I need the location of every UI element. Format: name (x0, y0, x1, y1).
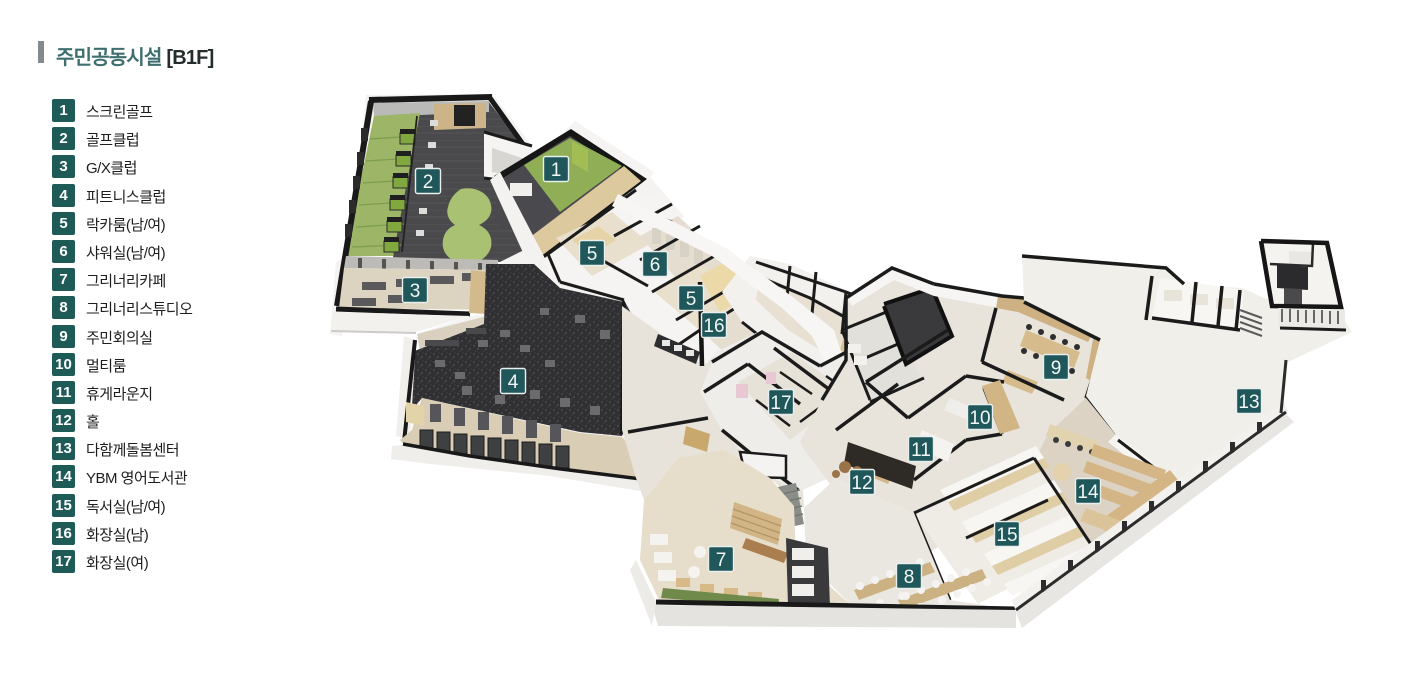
svg-text:14: 14 (1077, 482, 1099, 503)
svg-text:7: 7 (716, 550, 727, 571)
svg-text:5: 5 (587, 244, 598, 265)
svg-text:5: 5 (686, 289, 697, 310)
svg-text:8: 8 (904, 567, 915, 588)
svg-text:3: 3 (410, 281, 421, 302)
svg-text:4: 4 (508, 372, 519, 393)
svg-text:6: 6 (650, 255, 661, 276)
svg-text:16: 16 (703, 316, 724, 337)
svg-text:12: 12 (851, 473, 872, 494)
svg-text:15: 15 (996, 525, 1017, 546)
svg-text:9: 9 (1051, 358, 1062, 379)
svg-text:17: 17 (770, 393, 791, 414)
svg-text:1: 1 (551, 160, 562, 181)
svg-text:13: 13 (1238, 392, 1259, 413)
svg-text:10: 10 (969, 408, 990, 429)
svg-text:2: 2 (423, 172, 434, 193)
svg-text:11: 11 (911, 440, 931, 461)
